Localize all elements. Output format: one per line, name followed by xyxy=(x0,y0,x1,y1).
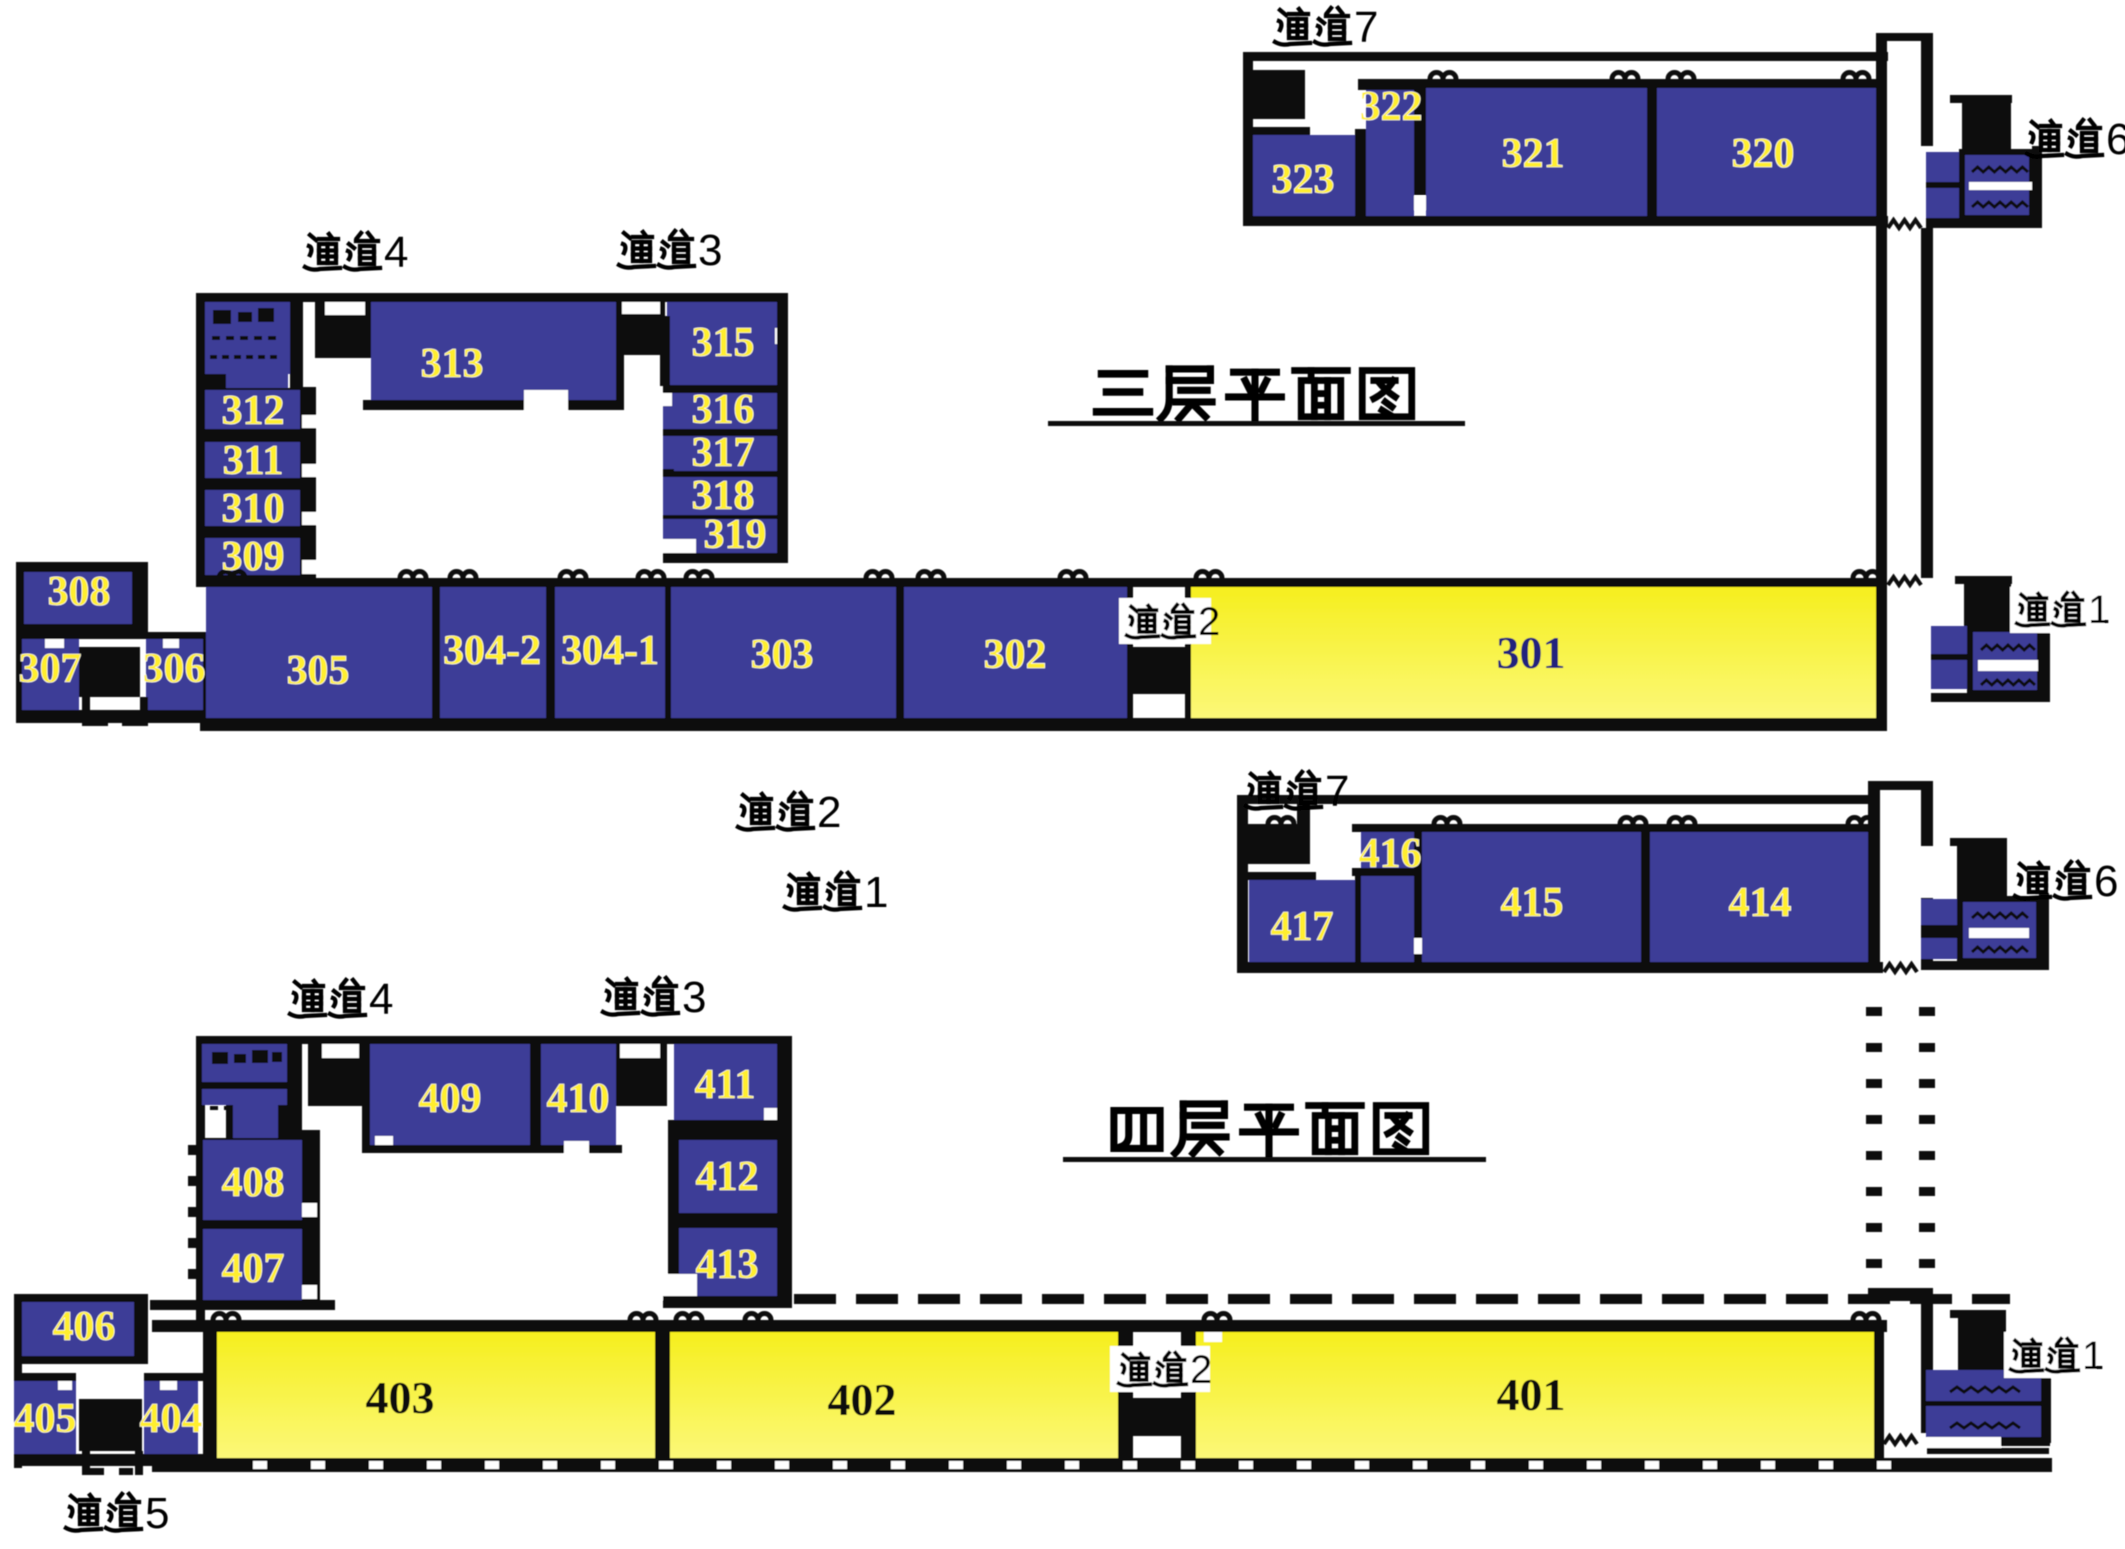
svg-text:304-2: 304-2 xyxy=(443,628,541,674)
svg-text:4: 4 xyxy=(369,975,393,1024)
svg-text:307: 307 xyxy=(19,646,82,692)
svg-text:7: 7 xyxy=(1354,3,1378,52)
svg-text:406: 406 xyxy=(53,1304,116,1350)
svg-text:2: 2 xyxy=(817,788,841,837)
svg-text:412: 412 xyxy=(696,1154,759,1200)
svg-text:402: 402 xyxy=(828,1374,897,1425)
svg-text:417: 417 xyxy=(1271,904,1334,950)
svg-text:403: 403 xyxy=(366,1372,435,1423)
svg-text:301: 301 xyxy=(1497,627,1566,678)
svg-text:323: 323 xyxy=(1272,157,1335,203)
svg-text:313: 313 xyxy=(421,341,484,387)
svg-text:5: 5 xyxy=(145,1489,169,1538)
svg-text:4: 4 xyxy=(384,228,408,277)
svg-text:7: 7 xyxy=(1325,767,1349,816)
svg-text:305: 305 xyxy=(287,648,350,694)
svg-text:408: 408 xyxy=(222,1160,285,1206)
svg-text:3: 3 xyxy=(682,973,706,1022)
svg-text:3: 3 xyxy=(698,226,722,275)
svg-text:6: 6 xyxy=(2094,857,2118,906)
svg-text:6: 6 xyxy=(2106,115,2125,164)
svg-text:416: 416 xyxy=(1359,831,1422,877)
svg-text:309: 309 xyxy=(222,534,285,580)
svg-text:306: 306 xyxy=(143,646,206,692)
svg-text:409: 409 xyxy=(419,1076,482,1122)
svg-text:320: 320 xyxy=(1732,131,1795,177)
svg-text:401: 401 xyxy=(1497,1369,1566,1420)
svg-text:1: 1 xyxy=(2088,588,2110,632)
svg-text:317: 317 xyxy=(692,430,755,476)
svg-text:407: 407 xyxy=(222,1246,285,1292)
svg-text:322: 322 xyxy=(1360,84,1423,130)
svg-text:310: 310 xyxy=(222,486,285,532)
svg-text:319: 319 xyxy=(704,512,767,558)
svg-text:415: 415 xyxy=(1501,880,1564,926)
svg-text:2: 2 xyxy=(1198,600,1220,644)
svg-text:308: 308 xyxy=(48,569,111,615)
svg-text:316: 316 xyxy=(692,387,755,433)
svg-text:321: 321 xyxy=(1502,131,1565,177)
svg-text:404: 404 xyxy=(140,1396,203,1442)
svg-text:411: 411 xyxy=(695,1062,756,1108)
svg-text:303: 303 xyxy=(751,632,814,678)
svg-text:311: 311 xyxy=(223,438,284,484)
svg-text:410: 410 xyxy=(547,1076,610,1122)
svg-text:414: 414 xyxy=(1729,880,1792,926)
svg-text:302: 302 xyxy=(984,632,1047,678)
svg-text:413: 413 xyxy=(696,1242,759,1288)
svg-text:1: 1 xyxy=(2082,1334,2104,1378)
svg-text:312: 312 xyxy=(222,388,285,434)
svg-text:1: 1 xyxy=(864,868,888,917)
svg-text:304-1: 304-1 xyxy=(561,628,659,674)
svg-text:2: 2 xyxy=(1190,1348,1212,1392)
svg-text:405: 405 xyxy=(14,1396,77,1442)
svg-text:315: 315 xyxy=(692,320,755,366)
